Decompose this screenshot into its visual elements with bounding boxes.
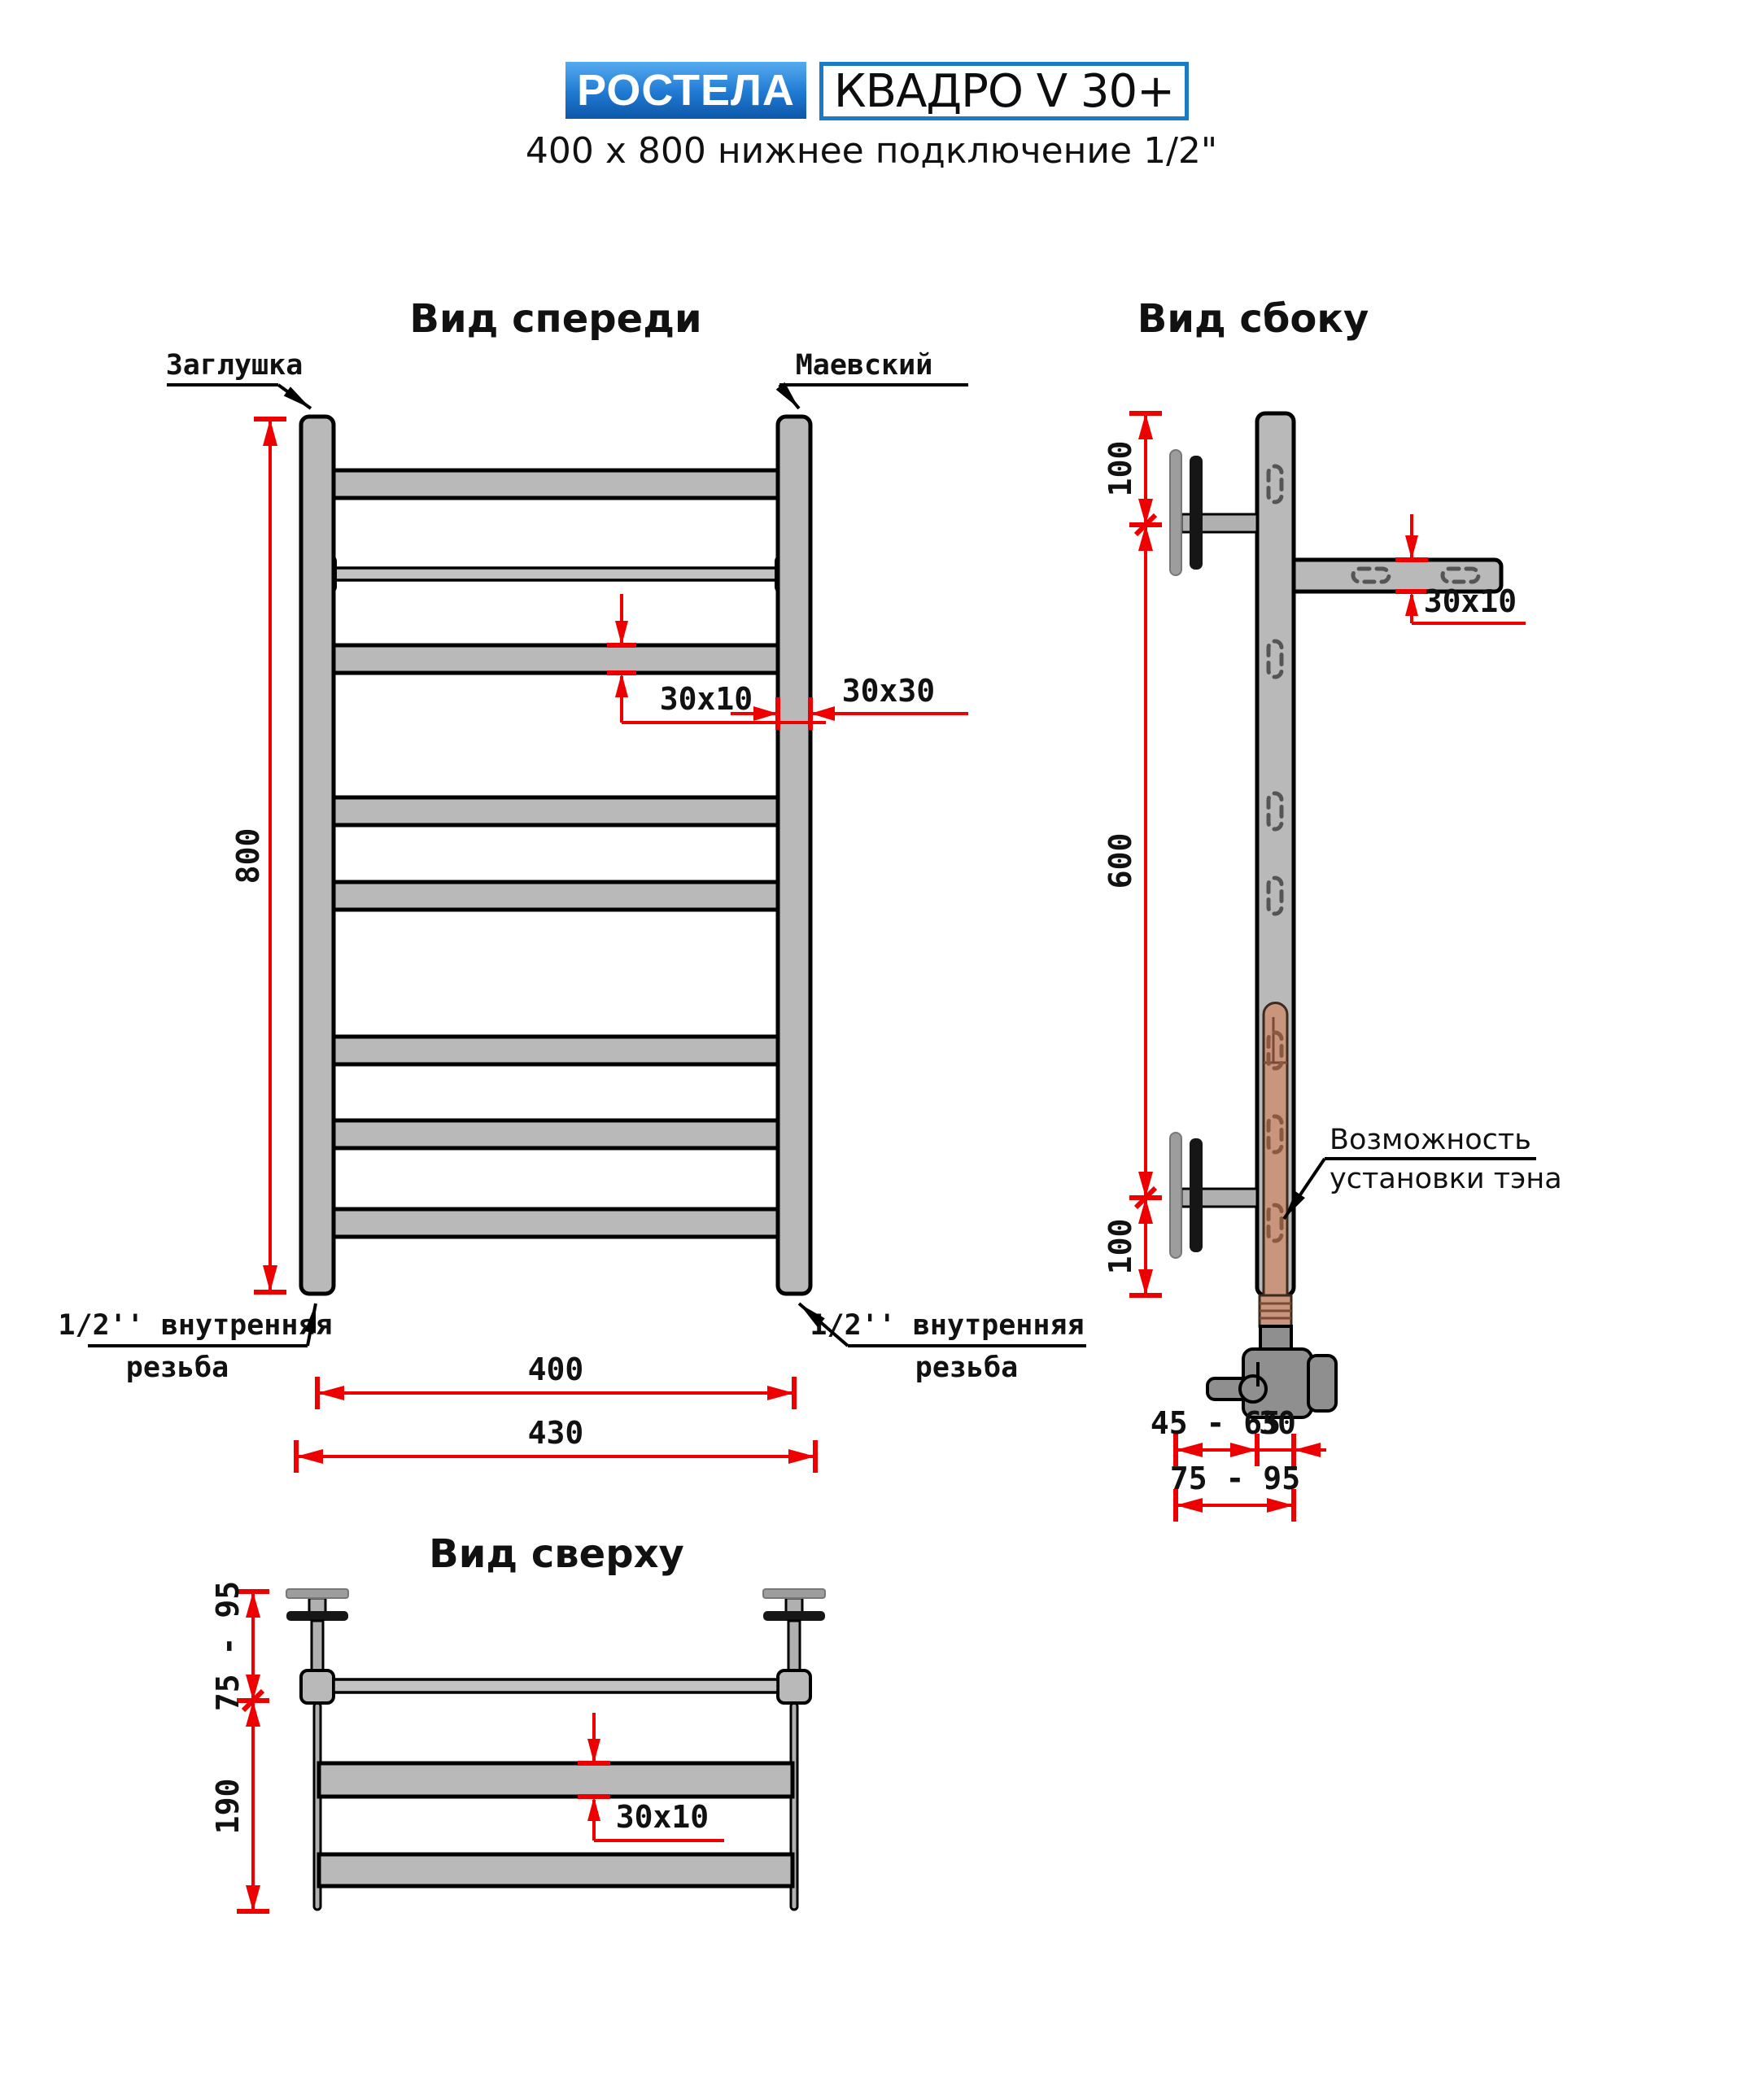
thread-left-line2: резьба [126,1352,229,1384]
brand-logo: РОСТЕЛА [565,62,806,119]
dim-width-430: 430 [296,1415,815,1473]
valve-label: Маевский [796,349,933,382]
dim-top-total-label: 190 [210,1779,246,1835]
valve-leader: Маевский [779,349,968,408]
drawing-subtitle: 400 x 800 нижнее подключение 1/2" [0,130,1743,172]
top-hanger-rail [334,1679,778,1692]
heater-note-line1: Возможность [1330,1124,1531,1156]
top-right-block [778,1670,810,1703]
dim-side-mid-label: 600 [1102,833,1138,889]
side-view: Вид сбоку [1102,296,1562,1522]
front-left-post [301,417,334,1294]
front-hanger-rail [321,556,791,592]
electric-box-neck [1260,1326,1291,1349]
brand-name: РОСТЕЛА [577,65,795,116]
dim-side-depths: 45 - 65 30 75 - 95 [1151,1405,1326,1522]
dim-side-top-label: 100 [1102,441,1138,497]
dim-side-tube-label: 30x10 [1424,583,1517,619]
cap-leader: Заглушка [166,349,311,408]
top-view: Вид сверху [210,1531,825,1911]
dim-post-depth-label: 30 [1259,1405,1296,1441]
model-name: КВАДРО V 30+ [834,65,1174,118]
top-tube-2 [319,1854,792,1886]
dim-top-chain: 75 - 95 190 [210,1581,269,1911]
dim-side-bottom-label: 100 [1102,1219,1138,1275]
side-view-title: Вид сбоку [1137,296,1369,342]
heating-element [1260,1003,1291,1327]
wall-bracket-bottom [1170,1133,1257,1258]
dim-width-400: 400 [317,1352,794,1409]
dim-top-bracket-label: 75 - 95 [210,1581,246,1711]
heater-note-leader: Возможность установки тэна [1284,1124,1562,1219]
top-tube-1 [319,1763,792,1797]
thread-right-line1: 1/2'' внутренняя [810,1309,1084,1342]
front-view-title: Вид спереди [409,296,701,342]
dim-height-800: 800 [230,419,286,1292]
front-rungs [332,470,779,1237]
dim-height-label: 800 [230,828,266,884]
thread-left-line1: 1/2'' внутренняя [58,1309,332,1342]
thread-right-line2: резьба [915,1352,1018,1384]
dim-top-tube-label: 30x10 [616,1799,709,1835]
thread-left-leader: 1/2'' внутренняя резьба [58,1304,332,1384]
dim-total-depth-label: 75 - 95 [1170,1461,1300,1496]
drawing-page: РОСТЕЛА КВАДРО V 30+ 400 x 800 нижнее по… [0,0,1764,2083]
wall-bracket-top [1170,450,1257,575]
cap-label: Заглушка [166,349,303,382]
dim-front-post-label: 30x30 [842,673,935,709]
front-right-post [778,417,810,1294]
thread-right-leader: 1/2'' внутренняя резьба [799,1304,1086,1384]
technical-drawing: Вид спереди Заглушка [0,0,1764,2083]
front-view: Вид спереди Заглушка [58,296,1086,1473]
dim-side-chain: 100 600 100 [1102,413,1162,1295]
heater-note-line2: установки тэна [1330,1163,1562,1195]
top-left-block [301,1670,334,1703]
electric-box [1207,1326,1336,1417]
top-view-title: Вид сверху [429,1531,684,1577]
model-badge: КВАДРО V 30+ [819,62,1189,120]
electric-box-cap [1308,1356,1336,1411]
dim-front-tube-label: 30x10 [660,681,753,717]
dim-width-430-label: 430 [528,1415,584,1451]
dim-width-400-label: 400 [528,1352,584,1387]
